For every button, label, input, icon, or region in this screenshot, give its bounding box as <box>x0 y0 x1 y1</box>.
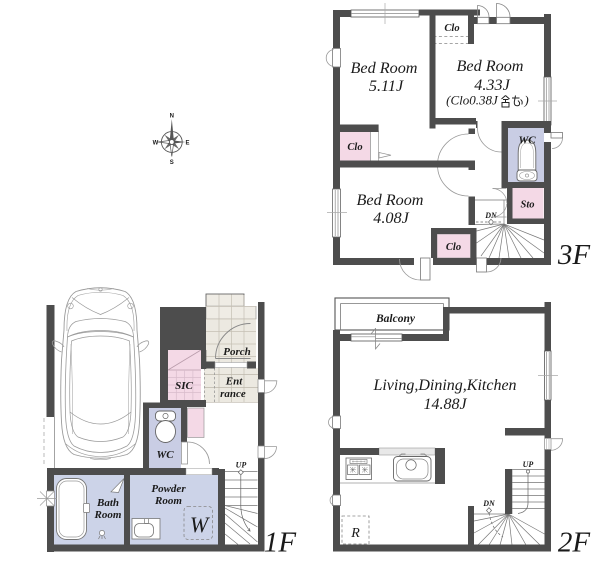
svg-text:): ) <box>523 93 528 108</box>
svg-text:Bed Room: Bed Room <box>351 59 418 77</box>
svg-text:4.08J: 4.08J <box>373 209 409 227</box>
svg-text:Clo: Clo <box>446 242 461 253</box>
svg-text:Balcony: Balcony <box>375 313 416 325</box>
svg-text:W: W <box>190 512 210 537</box>
svg-text:14.88J: 14.88J <box>423 396 467 413</box>
svg-text:Sto: Sto <box>520 200 534 211</box>
svg-text:W: W <box>153 140 159 146</box>
svg-text:Room: Room <box>94 509 122 521</box>
svg-text:rance: rance <box>220 388 246 400</box>
svg-text:WC: WC <box>518 135 536 147</box>
svg-text:DN: DN <box>484 211 498 220</box>
svg-text:Powder: Powder <box>151 483 186 495</box>
svg-text:2F: 2F <box>558 527 591 559</box>
svg-text:UP: UP <box>236 461 247 470</box>
svg-text:Clo: Clo <box>347 142 362 153</box>
svg-text:WC: WC <box>156 449 174 461</box>
svg-text:Porch: Porch <box>223 346 251 358</box>
svg-text:SIC: SIC <box>175 380 193 392</box>
svg-text:Bed Room: Bed Room <box>457 57 524 75</box>
svg-text:3F: 3F <box>557 239 591 271</box>
svg-text:E: E <box>185 140 189 146</box>
svg-text:Bath: Bath <box>96 497 119 509</box>
svg-text:Room: Room <box>154 495 182 507</box>
svg-text:1F: 1F <box>264 527 297 559</box>
svg-text:Ent: Ent <box>225 376 243 388</box>
svg-text:R: R <box>350 526 360 541</box>
svg-text:Bed Room: Bed Room <box>357 191 424 209</box>
svg-text:(Clo0.38J: (Clo0.38J <box>446 93 499 108</box>
svg-text:UP: UP <box>523 460 534 469</box>
svg-text:Clo: Clo <box>444 23 459 34</box>
svg-text:4.33J: 4.33J <box>474 76 510 94</box>
svg-text:Living,Dining,Kitchen: Living,Dining,Kitchen <box>372 377 516 394</box>
svg-text:N: N <box>170 114 174 120</box>
svg-text:5.11J: 5.11J <box>369 77 404 95</box>
svg-text:DN: DN <box>482 499 496 508</box>
svg-text:S: S <box>170 160 174 166</box>
